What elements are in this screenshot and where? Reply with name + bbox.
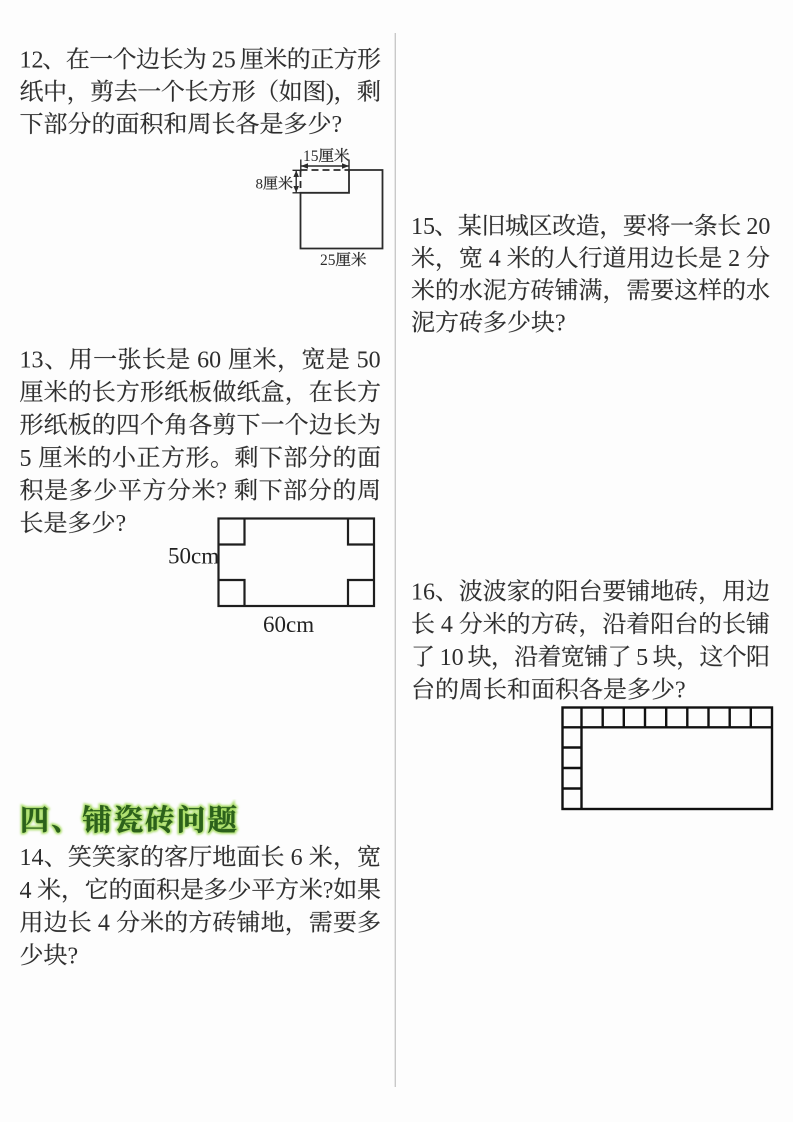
svg-text:10: 10 — [440, 645, 464, 671]
svg-text:?: ? — [675, 678, 686, 704]
svg-text:?: ? — [216, 479, 227, 505]
svg-text:2: 2 — [728, 246, 740, 272]
svg-text:25: 25 — [320, 252, 336, 269]
svg-text:13: 13 — [20, 348, 44, 374]
svg-text:16: 16 — [411, 579, 435, 605]
svg-text:6: 6 — [291, 845, 303, 871]
svg-text:5: 5 — [636, 645, 648, 671]
svg-text:8: 8 — [256, 177, 264, 193]
svg-text:50: 50 — [357, 348, 381, 374]
svg-text:25: 25 — [212, 47, 236, 73]
svg-text:4: 4 — [98, 911, 110, 937]
svg-text:15: 15 — [411, 214, 435, 240]
svg-text:15: 15 — [303, 148, 319, 165]
svg-text:4: 4 — [441, 612, 453, 638]
svg-text:14: 14 — [20, 845, 44, 871]
svg-text:?: ? — [323, 878, 334, 904]
svg-text:60: 60 — [197, 348, 221, 374]
svg-text:?: ? — [68, 943, 79, 969]
svg-text:20: 20 — [746, 214, 770, 240]
svg-text:50cm: 50cm — [168, 544, 219, 569]
svg-text:?: ? — [116, 511, 127, 537]
svg-text:12: 12 — [20, 47, 44, 73]
svg-text:): ) — [326, 80, 334, 106]
svg-text:60cm: 60cm — [263, 612, 314, 637]
svg-text:?: ? — [332, 112, 343, 138]
svg-text:4: 4 — [20, 878, 32, 904]
svg-text:?: ? — [555, 311, 566, 337]
svg-text:5: 5 — [20, 446, 32, 472]
svg-text:4: 4 — [489, 246, 501, 272]
